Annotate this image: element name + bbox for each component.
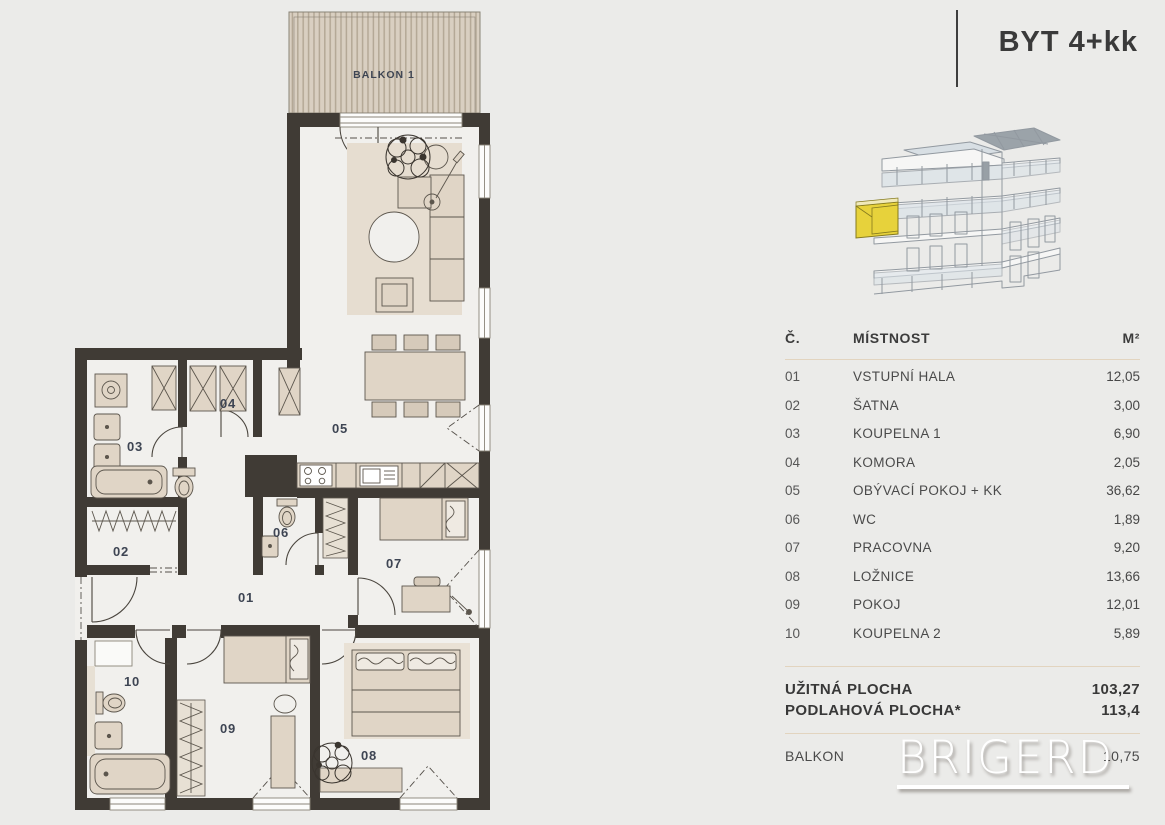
header-room: MÍSTNOST	[853, 330, 1122, 346]
room-label-06: 06	[273, 525, 289, 540]
table-row: 09POKOJ12,01	[785, 597, 1140, 626]
table-row: 05OBÝVACÍ POKOJ + KK36,62	[785, 483, 1140, 512]
table-row: 06WC1,89	[785, 512, 1140, 541]
total-row: PODLAHOVÁ PLOCHA*113,4	[785, 700, 1140, 721]
header-number: Č.	[785, 330, 853, 346]
room-label-05: 05	[332, 421, 348, 436]
unit-title: BYT 4+kk	[999, 26, 1138, 59]
room-label-07: 07	[386, 556, 402, 571]
table-row: 02ŠATNA3,00	[785, 398, 1140, 427]
title-divider	[956, 10, 958, 87]
table-row: 01VSTUPNÍ HALA12,05	[785, 369, 1140, 398]
balcony-row: BALKON 10,75	[785, 734, 1140, 764]
room-label-03: 03	[127, 439, 143, 454]
balcony-label: BALKON 1	[353, 69, 415, 81]
balcony: BALKON 1	[289, 12, 480, 113]
table-row: 10KOUPELNA 25,89	[785, 626, 1140, 655]
hall-closet	[323, 498, 348, 558]
table-row: 03KOUPELNA 16,90	[785, 426, 1140, 455]
room-label-10: 10	[124, 674, 140, 689]
room-label-08: 08	[361, 748, 377, 763]
room-label-09: 09	[220, 721, 236, 736]
table-row: 07PRACOVNA9,20	[785, 540, 1140, 569]
floor-plan: BALKON 1	[0, 0, 520, 825]
rooms-table: Č. MÍSTNOST M² 01VSTUPNÍ HALA12,05 02ŠAT…	[785, 330, 1140, 764]
totals-block: UŽITNÁ PLOCHA103,27 PODLAHOVÁ PLOCHA*113…	[785, 667, 1140, 731]
total-row: UŽITNÁ PLOCHA103,27	[785, 679, 1140, 700]
header-area: M²	[1122, 330, 1140, 346]
watermark-underline	[897, 785, 1129, 789]
table-row: 04KOMORA2,05	[785, 455, 1140, 484]
room-label-01: 01	[238, 590, 254, 605]
building-illustration	[852, 118, 1082, 300]
highlighted-unit	[856, 198, 898, 238]
table-row: 08LOŽNICE13,66	[785, 569, 1140, 598]
room-label-04: 04	[220, 396, 236, 411]
living-room-furniture	[347, 143, 465, 417]
table-rows: 01VSTUPNÍ HALA12,05 02ŠATNA3,00 03KOUPEL…	[785, 360, 1140, 654]
page: BALKON 1	[0, 0, 1165, 825]
table-header: Č. MÍSTNOST M²	[785, 330, 1140, 360]
room-label-02: 02	[113, 544, 129, 559]
